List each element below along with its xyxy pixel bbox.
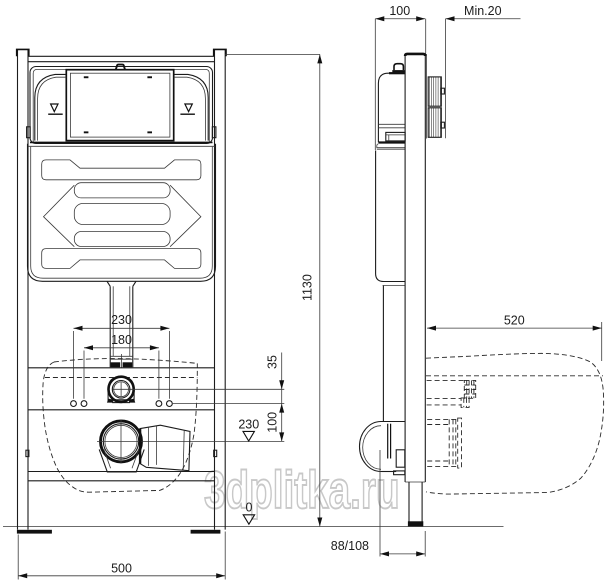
svg-text:88/108: 88/108 [331, 539, 369, 553]
svg-text:520: 520 [504, 313, 525, 327]
svg-text:230: 230 [111, 313, 132, 327]
svg-text:100: 100 [389, 4, 410, 18]
svg-text:Min.20: Min.20 [464, 4, 502, 18]
svg-text:100: 100 [265, 412, 279, 433]
svg-text:0: 0 [246, 501, 253, 515]
svg-text:180: 180 [111, 333, 132, 347]
svg-text:35: 35 [265, 355, 279, 369]
svg-text:500: 500 [111, 562, 132, 576]
svg-text:3dplitka.ru: 3dplitka.ru [204, 460, 400, 519]
svg-text:1130: 1130 [300, 274, 314, 301]
svg-text:230: 230 [238, 417, 259, 431]
